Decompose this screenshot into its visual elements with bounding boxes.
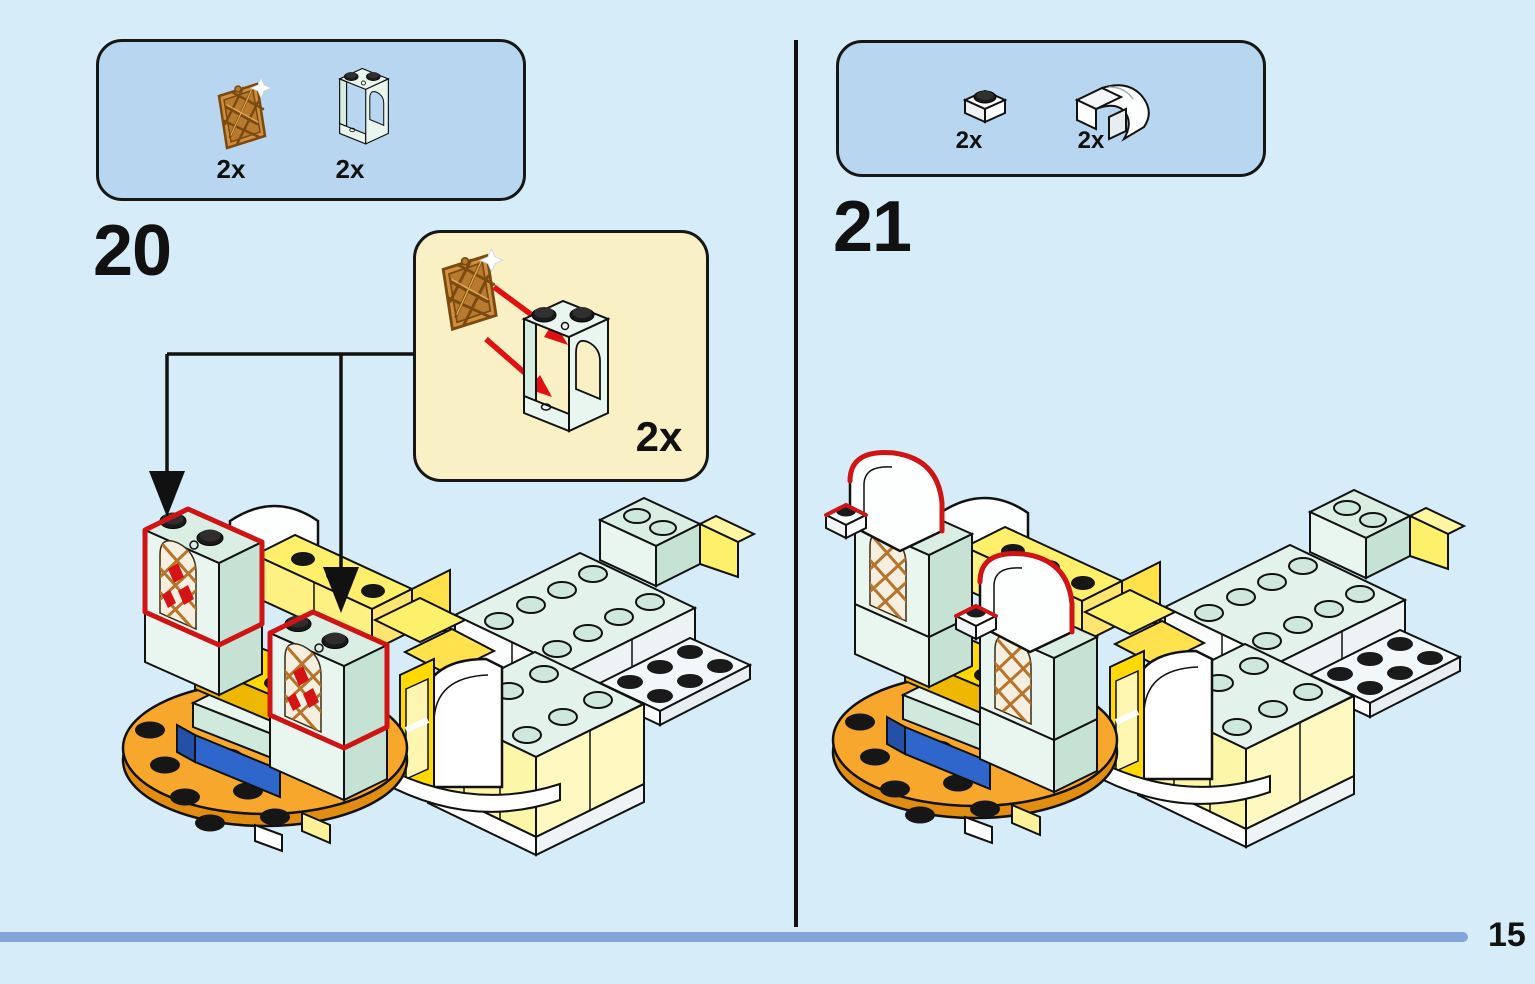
parts-box-step-20-illustration [99, 42, 523, 198]
part-count: 2x [201, 154, 261, 185]
down-arrow-icon [149, 471, 185, 517]
page-number: 15 [1488, 916, 1526, 955]
assembly-step-21 [800, 217, 1470, 852]
parts-box-step-21: 2x 2x [836, 40, 1266, 177]
part-count: 2x [1061, 127, 1121, 155]
callout-count: 2x [624, 413, 694, 461]
instruction-page: 2x 2x 20 2x 2x 2x 21 [0, 0, 1535, 984]
callout-box-step-20: 2x [413, 230, 709, 482]
progress-bar [0, 932, 1468, 942]
section-divider [794, 40, 798, 927]
part-count: 2x [939, 127, 999, 155]
parts-box-step-20: 2x 2x [96, 39, 526, 201]
parts-box-step-21-illustration [839, 43, 1263, 174]
part-count: 2x [320, 154, 380, 185]
